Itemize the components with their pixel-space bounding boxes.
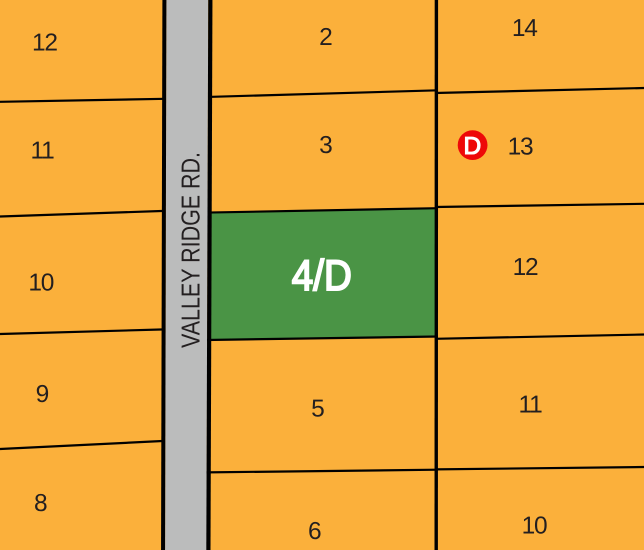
svg-text:4/D: 4/D (292, 252, 352, 300)
svg-text:13: 13 (508, 133, 533, 160)
svg-text:12: 12 (513, 254, 538, 281)
svg-text:2: 2 (319, 24, 333, 51)
svg-text:12: 12 (32, 29, 57, 56)
svg-text:D: D (463, 133, 481, 160)
svg-text:9: 9 (36, 381, 50, 408)
svg-text:3: 3 (319, 132, 333, 159)
svg-text:11: 11 (518, 392, 542, 419)
svg-text:5: 5 (311, 396, 325, 423)
svg-text:VALLEY RIDGE RD.: VALLEY RIDGE RD. (176, 152, 206, 348)
svg-text:6: 6 (308, 518, 322, 545)
svg-text:14: 14 (512, 15, 537, 42)
svg-text:8: 8 (34, 490, 48, 517)
svg-text:10: 10 (28, 270, 53, 297)
svg-text:10: 10 (522, 513, 547, 540)
svg-text:11: 11 (30, 137, 54, 164)
